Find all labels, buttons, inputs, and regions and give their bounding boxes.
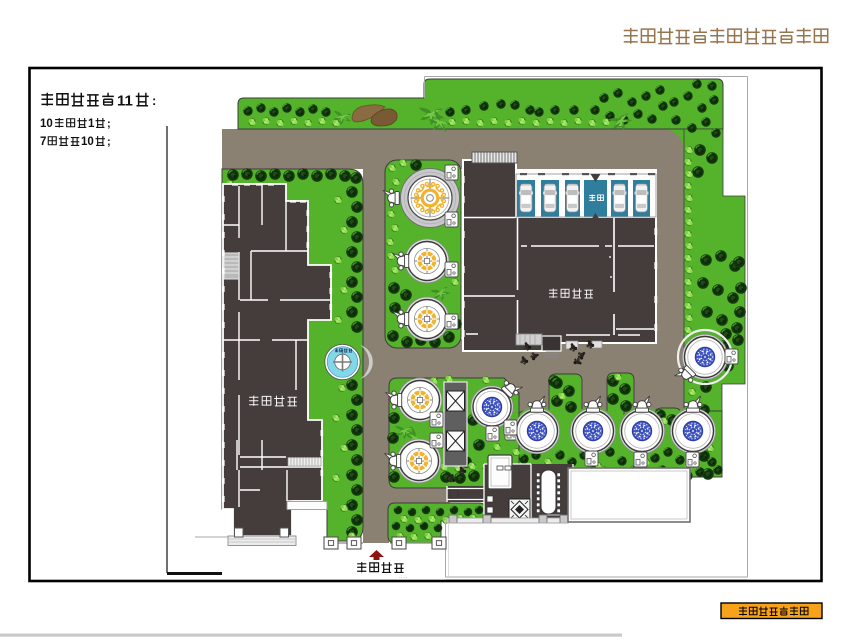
- svg-text::: :: [152, 93, 156, 108]
- svg-text:.. ..: .. ..: [399, 574, 408, 580]
- svg-text:10: 10: [81, 136, 94, 148]
- svg-text:;: ;: [107, 136, 111, 148]
- svg-text:10: 10: [40, 118, 53, 130]
- svg-text:7: 7: [40, 136, 46, 148]
- svg-text:;: ;: [107, 118, 111, 130]
- svg-text:11: 11: [117, 93, 133, 110]
- svg-text:1: 1: [88, 118, 95, 130]
